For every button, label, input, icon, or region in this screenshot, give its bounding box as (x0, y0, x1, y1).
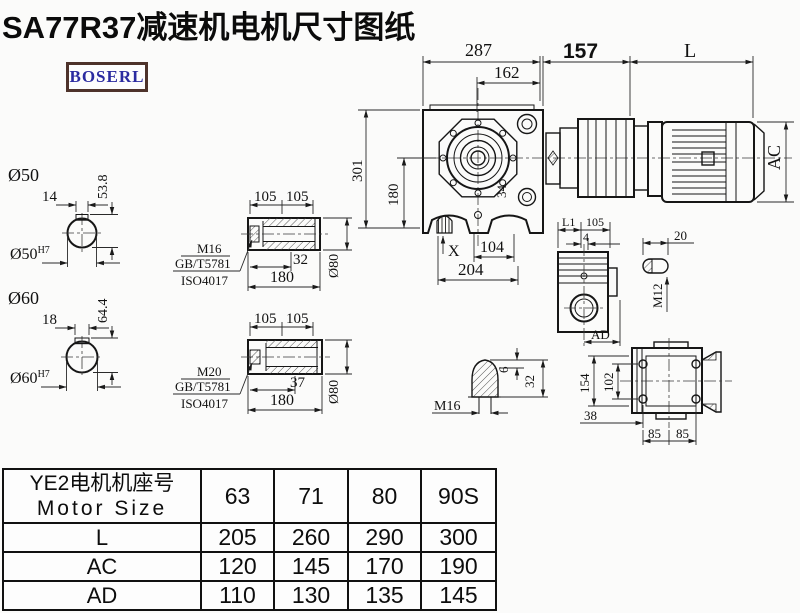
cell-AC-71: 145 (274, 552, 348, 581)
dim-180: 180 (386, 184, 402, 207)
hs1-dim-105a: 105 (254, 189, 277, 205)
drawing-sheet: 34 (0, 0, 800, 613)
table-col-80: 80 (348, 469, 421, 523)
shaft50-key-width: 14 (42, 189, 58, 205)
dim-301: 301 (350, 160, 366, 183)
table-header-cn: YE2电机机座号 (4, 471, 200, 496)
hs2-std2: ISO4017 (181, 396, 228, 411)
table-row-AC: AC 120 145 170 190 (3, 552, 496, 581)
brand-logo-text: BOSERL (70, 67, 145, 87)
dim-104: 104 (480, 239, 504, 256)
shaft60-key-height: 64.4 (96, 299, 111, 324)
main-dimensions: 287 162 157 L AC 301 180 X 104 (350, 40, 794, 285)
hs1-bolt: M16 (197, 241, 222, 256)
oil-plug (437, 216, 452, 233)
brand-logo: BOSERL (66, 62, 148, 92)
kd-dim-20: 20 (674, 228, 687, 243)
vd-thread: M16 (434, 399, 460, 414)
table-row-AD: AD 110 130 135 145 (3, 581, 496, 610)
shaft-section-60: Ø60 18 64.4 Ø60H7 (8, 288, 121, 391)
dim-204: 204 (458, 260, 484, 279)
hs2-dim-105a: 105 (254, 311, 277, 327)
bv-dim-154: 154 (577, 373, 592, 393)
cell-AC-90S: 190 (421, 552, 496, 581)
page-title: SA77R37减速机电机尺寸图纸 (2, 2, 415, 47)
sv-dim-105: 105 (586, 215, 604, 229)
dim-157: 157 (563, 40, 598, 63)
hs2-dim-180: 180 (270, 392, 294, 409)
cell-AD-90S: 145 (421, 581, 496, 610)
hollow-shaft-1: 105 105 32 180 Ø80 M16 GB/T5781 ISO4017 (173, 189, 352, 291)
hs1-std2: ISO4017 (181, 273, 228, 288)
shaft-section-50: Ø50 14 53.8 Ø50H7 (8, 165, 120, 267)
hs2-dia: Ø80 (327, 380, 342, 404)
motor-fins (672, 130, 726, 194)
row-label-AC: AC (3, 552, 201, 581)
shaft60-label: Ø60 (8, 288, 39, 308)
dim-X: X (448, 243, 460, 260)
dim-287: 287 (465, 40, 492, 60)
table-header-row: YE2电机机座号 Motor Size 63 71 80 90S (3, 469, 496, 523)
table-row-L: L 205 260 290 300 (3, 523, 496, 552)
dim-34-label: 34 (494, 185, 509, 199)
dim-L: L (684, 40, 696, 62)
hs2-bolt-labels: M20 GB/T5781 ISO4017 (173, 363, 252, 411)
sv-dim-AD: AD (591, 327, 610, 342)
hs1-std1: GB/T5781 (175, 256, 231, 271)
cell-L-80: 290 (348, 523, 421, 552)
shaft50-bore-label: Ø50H7 (10, 245, 50, 263)
hs1-dim-105b: 105 (286, 189, 309, 205)
sv-dim-4: 4 (583, 230, 589, 244)
hs1-dim-180: 180 (270, 269, 294, 286)
key-detail: 20 M12 (643, 228, 694, 312)
cell-L-63: 205 (201, 523, 274, 552)
gearbox-side-view: L1 105 4 AD (558, 215, 620, 346)
shaft60-bore-tol: H7 (38, 369, 50, 380)
cell-AD-63: 110 (201, 581, 274, 610)
gearbox-housing: 34 (423, 105, 543, 233)
shaft60-key-width: 18 (42, 312, 57, 328)
main-assembly-view: 34 (350, 40, 794, 285)
vent-plug-detail: 6 32 M16 (432, 348, 548, 414)
hs2-bolt: M20 (197, 364, 222, 379)
motor-size-table: YE2电机机座号 Motor Size 63 71 80 90S L 205 2… (2, 468, 497, 611)
shaft60-bore-label: Ø60H7 (10, 369, 50, 387)
bv-dim-102: 102 (601, 373, 616, 393)
table-col-71: 71 (274, 469, 348, 523)
hs2-dim-37: 37 (290, 375, 306, 391)
vd-dim-32: 32 (522, 375, 537, 388)
cell-AC-63: 120 (201, 552, 274, 581)
motor (662, 122, 764, 202)
row-label-L: L (3, 523, 201, 552)
cell-L-71: 260 (274, 523, 348, 552)
shaft50-label: Ø50 (8, 165, 39, 185)
table-col-63: 63 (201, 469, 274, 523)
dim-AC: AC (764, 145, 784, 170)
hs1-bolt-labels: M16 GB/T5781 ISO4017 (173, 240, 252, 288)
hs1-dia: Ø80 (327, 254, 342, 278)
hs2-dim-105b: 105 (286, 311, 309, 327)
bv-dim-85a: 85 (648, 426, 661, 441)
shaft60-bore-dia: Ø60 (10, 370, 38, 387)
cell-AD-71: 130 (274, 581, 348, 610)
hollow-shaft-2: 105 105 37 180 Ø80 M20 GB/T5781 ISO4017 (173, 311, 352, 414)
shaft50-bore-dia: Ø50 (10, 246, 38, 263)
bv-dim-85b: 85 (676, 426, 689, 441)
shaft50-key-height: 53.8 (96, 175, 111, 200)
shaft50-bore-tol: H7 (38, 245, 50, 256)
vd-dim-6: 6 (496, 366, 511, 373)
table-header-en: Motor Size (4, 496, 200, 521)
gearbox-bottom-view: 154 102 38 85 85 (577, 338, 732, 445)
dim-162: 162 (494, 63, 520, 82)
cell-L-90S: 300 (421, 523, 496, 552)
hs2-std1: GB/T5781 (175, 379, 231, 394)
cell-AD-80: 135 (348, 581, 421, 610)
kd-thread: M12 (650, 283, 665, 308)
table-col-90S: 90S (421, 469, 496, 523)
table-header-motor-size: YE2电机机座号 Motor Size (3, 469, 201, 523)
cell-AC-80: 170 (348, 552, 421, 581)
hs1-dim-32: 32 (293, 252, 308, 268)
shaft-mark (548, 151, 558, 165)
sv-dim-L1: L1 (562, 215, 575, 229)
bv-dim-38: 38 (584, 408, 597, 423)
row-label-AD: AD (3, 581, 201, 610)
